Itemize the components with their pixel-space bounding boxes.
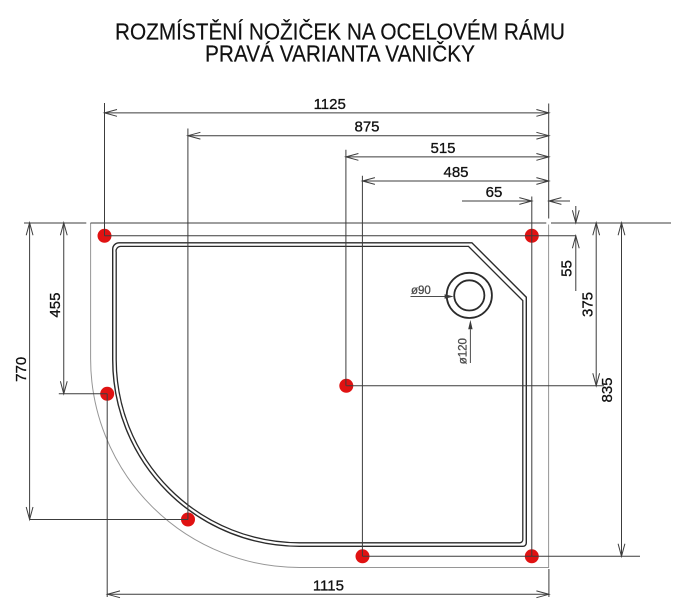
svg-text:55: 55 [558,260,575,277]
svg-text:375: 375 [580,292,597,317]
svg-text:515: 515 [430,140,455,157]
svg-text:875: 875 [354,119,379,136]
svg-text:65: 65 [486,184,503,201]
svg-text:770: 770 [13,357,30,382]
svg-text:485: 485 [443,164,468,181]
svg-text:ø120: ø120 [458,338,470,364]
svg-text:1115: 1115 [313,577,344,594]
svg-text:ø90: ø90 [411,285,431,297]
svg-text:PRAVÁ VARIANTA VANIČKY: PRAVÁ VARIANTA VANIČKY [205,40,475,67]
svg-text:455: 455 [47,293,64,318]
svg-text:1125: 1125 [314,96,346,113]
svg-text:835: 835 [599,377,616,402]
